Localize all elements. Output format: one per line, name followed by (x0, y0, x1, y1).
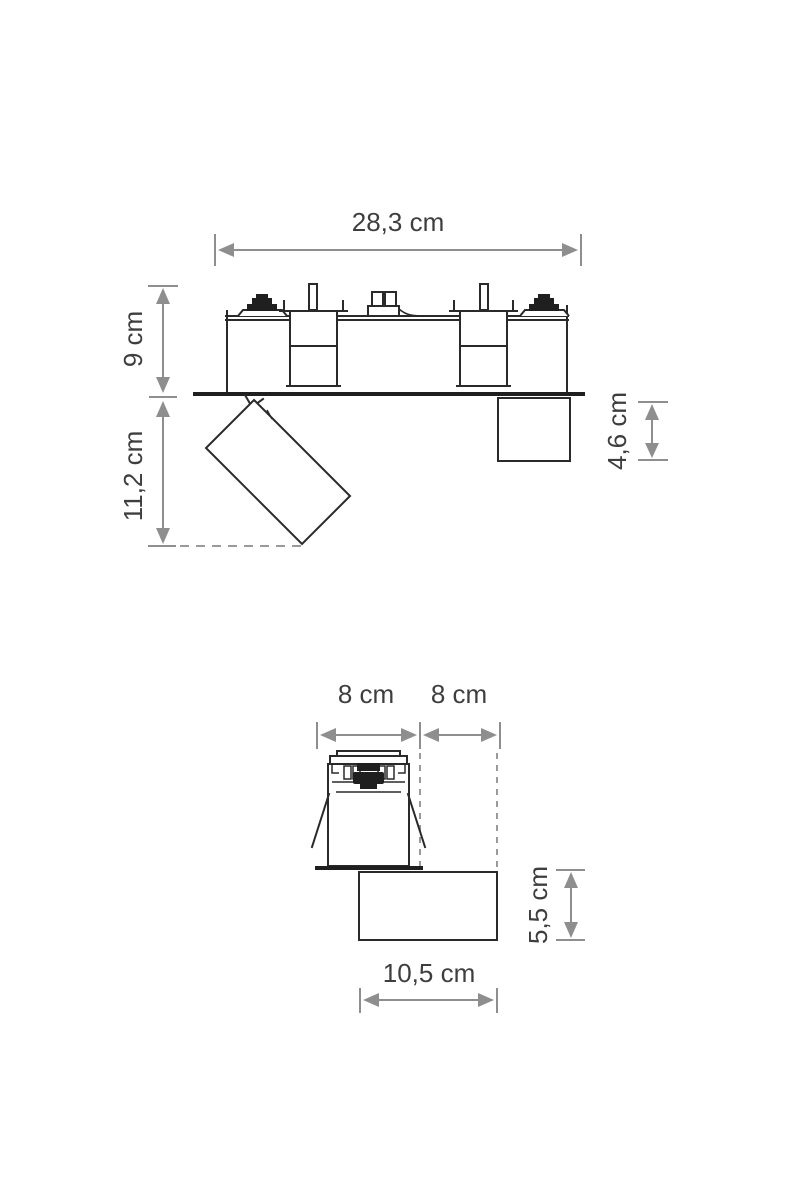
dim-housing-height: 9 cm (118, 286, 178, 397)
arrowhead-down-icon (645, 443, 659, 458)
knob-cap (256, 294, 268, 299)
arrowhead-right-icon (562, 243, 578, 257)
arrowhead-down-icon (564, 922, 578, 938)
dim-offset-width: 8 cm (423, 679, 500, 749)
knob-step2 (534, 298, 554, 305)
knob-step1 (247, 304, 277, 311)
arrowhead-right-icon (478, 993, 494, 1007)
dim-right-box-height: 4,6 cm (602, 392, 668, 470)
dim-box-height: 5,5 cm (523, 866, 585, 944)
latch-left-outer (344, 766, 351, 779)
connector-prong-right (385, 292, 396, 306)
dim-head-width: 8 cm (317, 679, 420, 749)
module-fill (459, 311, 508, 386)
spot-body (206, 400, 350, 544)
left-screw-knob (238, 294, 287, 316)
dim-box-width: 10,5 cm (360, 958, 497, 1013)
spot-head-end-view (312, 751, 425, 875)
spring-flange-right (408, 794, 425, 847)
gripper-base (360, 784, 377, 789)
dimension-label-box-width: 10,5 cm (383, 958, 476, 988)
knob-step1 (529, 304, 559, 311)
dimension-drawing: 28,3 cm 9 cm 11,2 cm (0, 0, 800, 1200)
gripper-top (357, 763, 380, 771)
arrowhead-down-icon (156, 528, 170, 544)
knob-step2 (252, 298, 272, 305)
track-housing (193, 284, 585, 394)
front-view: 28,3 cm 9 cm 11,2 cm (118, 207, 668, 546)
arrowhead-right-icon (401, 728, 417, 742)
dimension-drawing-canvas: 28,3 cm 9 cm 11,2 cm (0, 0, 800, 1200)
knob-cap (538, 294, 550, 299)
left-adapter-module (280, 284, 347, 386)
right-screw-knob (520, 294, 569, 316)
dimension-label-head-width: 8 cm (338, 679, 394, 709)
arrowhead-up-icon (156, 401, 170, 417)
arrowhead-right-icon (481, 728, 497, 742)
dimension-label-box-height: 5,5 cm (523, 866, 553, 944)
arrowhead-down-icon (156, 377, 170, 393)
middle-connector (368, 292, 424, 316)
arrowhead-up-icon (645, 404, 659, 420)
module-fill (289, 311, 338, 386)
spring-flange-left (312, 794, 329, 847)
dimension-label-housing-height: 9 cm (118, 311, 148, 367)
arrowhead-left-icon (363, 993, 379, 1007)
tilted-spotlight (206, 395, 350, 544)
dimension-label-right-box-height: 4,6 cm (602, 392, 632, 470)
gripper-body (353, 772, 384, 784)
dimension-label-spot-height: 11,2 cm (118, 431, 148, 522)
cap-outer (330, 756, 407, 764)
module-pin (480, 284, 488, 310)
right-recessed-box (498, 398, 570, 461)
arrowhead-up-icon (156, 288, 170, 304)
connector-prong-left (372, 292, 383, 306)
connector-skirt (399, 309, 424, 316)
module-pin (309, 284, 317, 310)
recessed-box (359, 872, 497, 940)
arrowhead-up-icon (564, 872, 578, 888)
side-view: 8 cm 8 cm (312, 679, 585, 1013)
dim-overall-width: 28,3 cm (215, 207, 581, 266)
right-adapter-module (450, 284, 517, 386)
dimension-label-overall-width: 28,3 cm (352, 207, 445, 237)
arrowhead-left-icon (423, 728, 439, 742)
arrowhead-left-icon (320, 728, 336, 742)
connector-base (368, 306, 399, 316)
latch-right-outer (387, 766, 394, 779)
dimension-label-offset-width: 8 cm (431, 679, 487, 709)
arrowhead-left-icon (218, 243, 234, 257)
